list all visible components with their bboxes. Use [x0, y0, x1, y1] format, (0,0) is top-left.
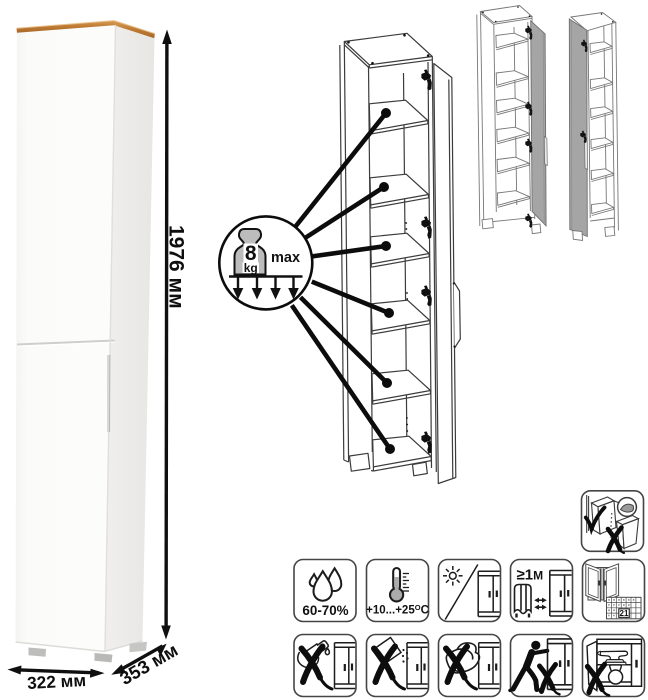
svg-text:kg: kg [244, 261, 258, 275]
svg-text:≥1M: ≥1M [517, 567, 544, 584]
svg-text:60-70%: 60-70% [302, 603, 348, 618]
svg-text:21: 21 [620, 609, 629, 618]
svg-text:max: max [271, 250, 300, 266]
svg-text:1976 мм: 1976 мм [165, 225, 188, 309]
svg-text:353 мм: 353 мм [116, 639, 181, 689]
svg-text:322 мм: 322 мм [27, 670, 87, 693]
